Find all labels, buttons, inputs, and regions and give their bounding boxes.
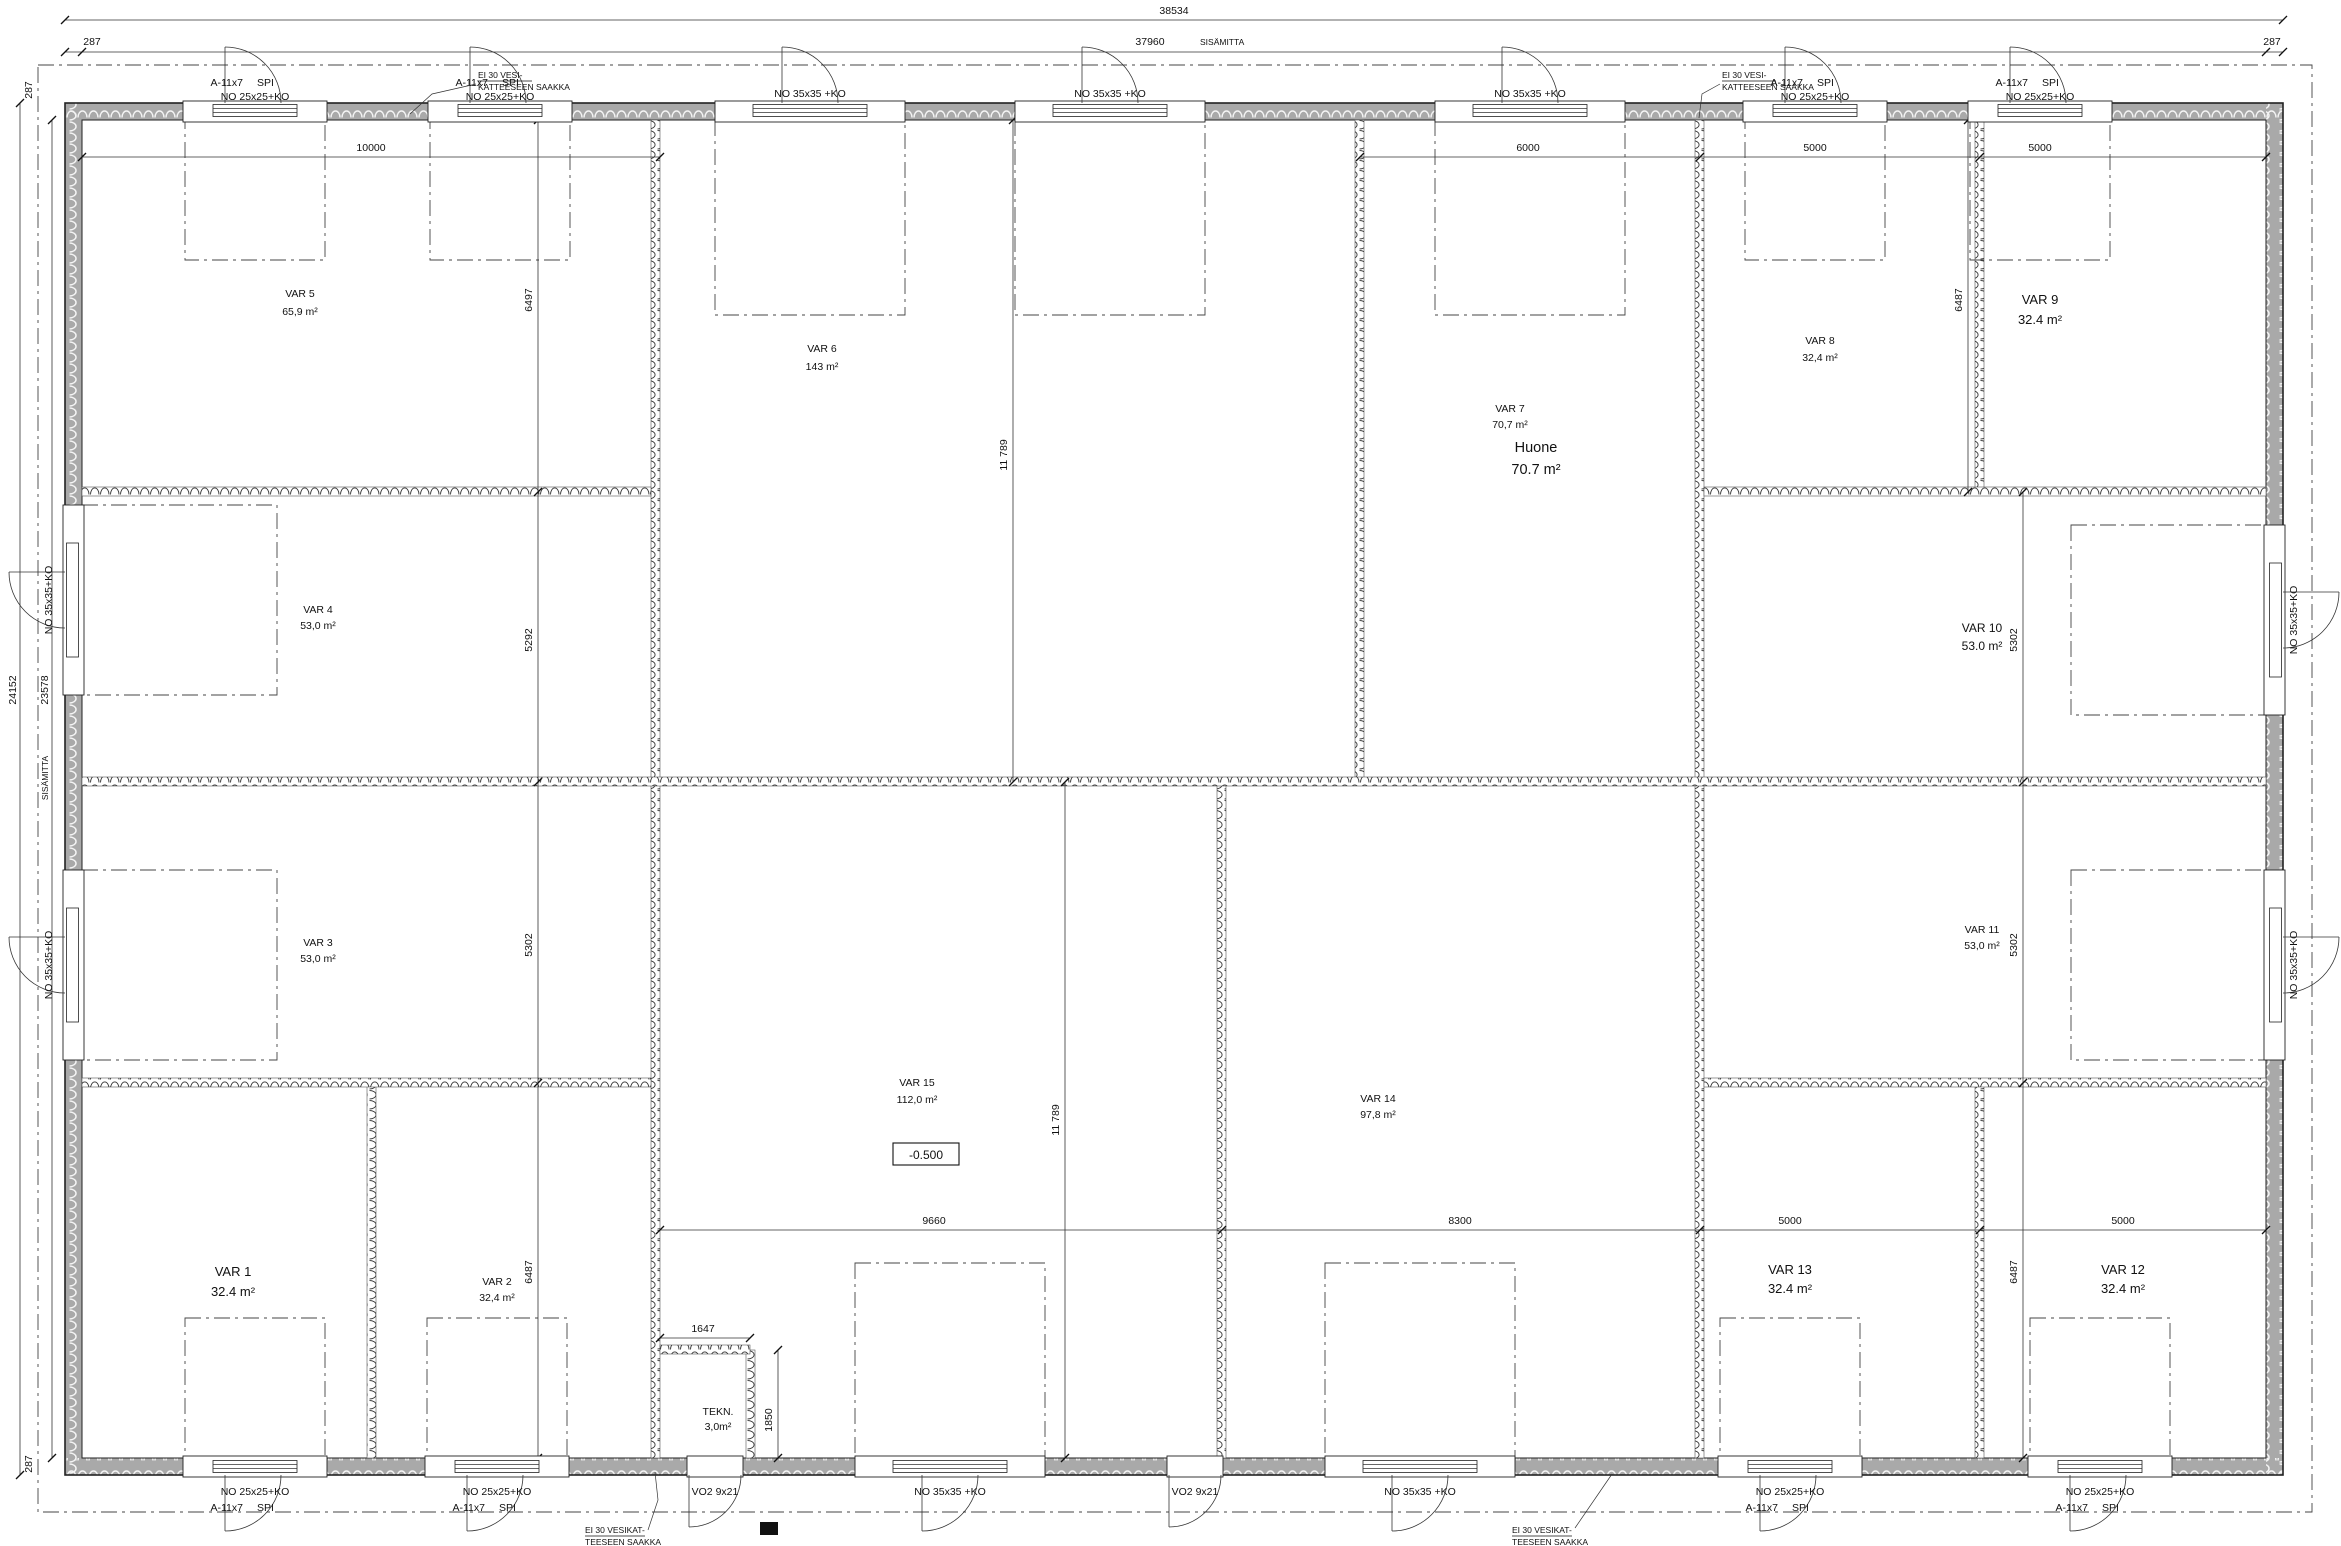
overall-dimensions: 38534 287 37960 SISÄMITTA 287 24152 2357… (7, 5, 2287, 1479)
room-name-var10: VAR 10 (1962, 621, 2003, 635)
door-label-no35: NO 35x35 +KO (914, 1486, 986, 1498)
wall-var14-var13 (1695, 782, 1704, 1458)
dim-5302-var11: 5302 (2008, 933, 2020, 957)
door-label-no35: NO 35x35 +KO (1384, 1486, 1456, 1498)
wall-var5-var4 (82, 487, 651, 496)
door-var13: NO 25x25+KO A-11x7 SPI (1718, 1456, 1862, 1531)
door-var7: NO 35x35 +KO (1435, 47, 1625, 122)
outer-walls (65, 103, 2283, 1475)
section-marker (760, 1522, 778, 1535)
dim-inner-height-label: SISÄMITTA (40, 756, 50, 801)
room-area-var4: 53,0 m² (300, 620, 336, 632)
dim-total-width: 38534 (1159, 5, 1188, 17)
door-label-spi: SPI (1792, 1502, 1809, 1514)
room-name-var1: VAR 1 (215, 1264, 252, 1279)
dim-11789-bottom: 11 789 (1050, 1104, 1062, 1135)
door-var2: NO 25x25+KO A-11x7 SPI (425, 1456, 569, 1531)
note-line2: TEESEEN SAAKKA (1512, 1537, 1588, 1546)
door-var14: NO 35x35 +KO (1325, 1456, 1515, 1531)
room-subarea-huone: 70.7 m² (1511, 462, 1560, 478)
room-area-var6: 143 m² (806, 361, 839, 373)
dim-wall-top-right: 287 (2263, 36, 2281, 48)
interior-walls (82, 120, 2266, 1458)
dim-5000-var13: 5000 (1778, 1215, 1802, 1227)
wall-var5col-var6 (651, 120, 660, 1458)
wall-var11-var13var12 (1704, 1078, 2266, 1087)
door-label-a11: A-11x7 (211, 1502, 244, 1514)
room-area-var7: 70,7 m² (1492, 419, 1528, 431)
dim-8300: 8300 (1448, 1215, 1472, 1227)
room-name-var3: VAR 3 (303, 937, 333, 949)
dim-9660: 9660 (922, 1215, 946, 1227)
door-label-vo2: VO2 9x21 (1172, 1486, 1219, 1498)
dim-1647: 1647 (691, 1323, 715, 1335)
elevation-value: -0.500 (909, 1148, 943, 1162)
room-name-var11: VAR 11 (1965, 924, 2000, 936)
door-label-no35v: NO 35x35+KO (2288, 931, 2300, 1000)
dim-5000-var8: 5000 (1803, 142, 1827, 154)
door-label-no25: NO 25x25+KO (463, 1486, 532, 1498)
door-label-no25: NO 25x25+KO (1781, 91, 1850, 103)
dim-6000: 6000 (1516, 142, 1540, 154)
room-name-var13: VAR 13 (1768, 1262, 1812, 1277)
door-var6-2: NO 35x35 +KO (1015, 47, 1205, 122)
door-label-no35: NO 35x35 +KO (1494, 88, 1566, 100)
note-ei30-bottom-right: EI 30 VESIKAT- TEESEEN SAAKKA (1512, 1474, 1612, 1546)
door-var6-1: NO 35x35 +KO (715, 47, 905, 122)
room-name-var14: VAR 14 (1360, 1093, 1396, 1105)
roof-eaves-outline (38, 65, 2312, 1512)
room-area-var1: 32.4 m² (211, 1284, 256, 1299)
door-label-no25: NO 25x25+KO (2006, 91, 2075, 103)
dim-wall-left-bottom: 287 (23, 1455, 35, 1473)
door-label-no25: NO 25x25+KO (2066, 1486, 2135, 1498)
door-label-no25: NO 25x25+KO (221, 1486, 290, 1498)
room-area-var2: 32,4 m² (479, 1292, 515, 1304)
wall-var6-var7 (1355, 120, 1364, 782)
door-label-spi: SPI (1817, 77, 1834, 89)
room-name-var4: VAR 4 (303, 604, 333, 616)
room-area-var14: 97,8 m² (1360, 1109, 1396, 1121)
room-name-var6: VAR 6 (807, 343, 837, 355)
door-label-vo2: VO2 9x21 (692, 1486, 739, 1498)
interior-dimensions: 10000 6000 5000 5000 9660 8300 5000 5000… (78, 116, 2270, 1462)
wall-var15-var14 (1217, 782, 1226, 1458)
door-label-a11: A-11x7 (2056, 1502, 2089, 1514)
dim-10000: 10000 (356, 142, 385, 154)
door-label-a11: A-11x7 (453, 1502, 486, 1514)
dim-5292: 5292 (523, 628, 535, 652)
room-name-tekn: TEKN. (703, 1406, 734, 1418)
dim-inner-width-label: SISÄMITTA (1200, 37, 1245, 47)
room-name-var15: VAR 15 (899, 1077, 935, 1089)
wall-var7-var8 (1695, 120, 1704, 782)
room-area-var3: 53,0 m² (300, 953, 336, 965)
note-line1: EI 30 VESIKAT- (1512, 1525, 1572, 1535)
door-var5-1: A-11x7 SPI NO 25x25+KO (183, 47, 327, 122)
dim-11789-top: 11 789 (998, 439, 1010, 470)
dim-inner-height: 23578 (39, 675, 51, 704)
room-area-tekn: 3,0m² (705, 1421, 732, 1433)
door-label-spi: SPI (2042, 77, 2059, 89)
dim-5302-var3: 5302 (523, 933, 535, 957)
dim-5302-var10: 5302 (2008, 628, 2020, 652)
door-var15-vo2: VO2 9x21 (1167, 1456, 1223, 1527)
room-area-var10: 53.0 m² (1962, 639, 2003, 653)
room-area-var9: 32.4 m² (2018, 312, 2063, 327)
door-label-spi: SPI (257, 1502, 274, 1514)
room-subname-huone: Huone (1515, 440, 1558, 456)
note-line2: TEESEEN SAAKKA (585, 1537, 661, 1546)
room-name-var8: VAR 8 (1805, 335, 1835, 347)
note-line1: EI 30 VESI- (478, 70, 523, 80)
wall-tekn-top (660, 1345, 750, 1354)
door-tekn-vo2: VO2 9x21 (687, 1456, 743, 1527)
room-area-var12: 32.4 m² (2101, 1281, 2146, 1296)
dim-5000-var12: 5000 (2111, 1215, 2135, 1227)
door-var1: NO 25x25+KO A-11x7 SPI (183, 1456, 327, 1531)
dim-5000-var9: 5000 (2028, 142, 2052, 154)
door-var11-right: NO 35x35+KO (2264, 870, 2339, 1060)
wall-var8var9-var10 (1704, 487, 2266, 496)
door-label-a11: A-11x7 (1746, 1502, 1779, 1514)
door-var12: NO 25x25+KO A-11x7 SPI (2028, 1456, 2172, 1531)
door-label-no35v: NO 35x35+KO (43, 566, 55, 635)
door-label-no35: NO 35x35 +KO (774, 88, 846, 100)
room-name-var9: VAR 9 (2022, 292, 2059, 307)
room-area-var13: 32.4 m² (1768, 1281, 1813, 1296)
dim-wall-left-top: 287 (23, 81, 35, 99)
dim-6487-var8: 6487 (1953, 288, 1965, 312)
room-area-var8: 32,4 m² (1802, 352, 1838, 364)
doors-top: A-11x7 SPI NO 25x25+KO A-11x7 SPI NO 25x… (183, 47, 2112, 122)
wall-central (82, 777, 2266, 786)
dim-wall-top-left: 287 (83, 36, 101, 48)
room-name-var5: VAR 5 (285, 288, 315, 300)
door-clearance-zones (82, 120, 2266, 1458)
door-label-no35v: NO 35x35+KO (43, 931, 55, 1000)
wall-var3-var1var2 (82, 1078, 651, 1087)
dim-6487-var2: 6487 (523, 1260, 535, 1284)
wall-var13-var12 (1975, 1083, 1984, 1458)
door-var9: A-11x7 SPI NO 25x25+KO (1968, 47, 2112, 122)
door-label-spi: SPI (257, 77, 274, 89)
room-name-var12: VAR 12 (2101, 1262, 2145, 1277)
door-var10-right: NO 35x35+KO (2264, 525, 2339, 715)
dim-inner-width: 37960 (1135, 36, 1164, 48)
floor-plan-page: 38534 287 37960 SISÄMITTA 287 24152 2357… (0, 0, 2341, 1546)
room-area-var11: 53,0 m² (1964, 940, 2000, 952)
dim-1850: 1850 (763, 1408, 775, 1432)
door-label-no25: NO 25x25+KO (466, 91, 535, 103)
door-label-a11: A-11x7 (1996, 77, 2029, 89)
note-line2: KATTEESEEN SAAKKA (478, 82, 570, 92)
wall-tekn-right (746, 1350, 755, 1458)
door-label-no35v: NO 35x35+KO (2288, 586, 2300, 655)
door-label-a11: A-11x7 (1771, 77, 1804, 89)
floor-plan-canvas: 38534 287 37960 SISÄMITTA 287 24152 2357… (0, 0, 2341, 1546)
door-label-a11: A-11x7 (211, 77, 244, 89)
dim-6497: 6497 (523, 288, 535, 312)
door-label-no25: NO 25x25+KO (221, 91, 290, 103)
room-area-var15: 112,0 m² (897, 1094, 938, 1106)
dim-total-height: 24152 (7, 675, 19, 704)
elevation-marker: -0.500 (893, 1143, 959, 1165)
room-name-var7: VAR 7 (1495, 403, 1525, 415)
wall-var8-var9 (1975, 120, 1984, 492)
dim-6487-var12: 6487 (2008, 1260, 2020, 1284)
note-ei30-bottom-left: EI 30 VESIKAT- TEESEEN SAAKKA (585, 1472, 661, 1546)
room-name-var2: VAR 2 (482, 1276, 512, 1288)
door-label-spi: SPI (499, 1502, 516, 1514)
note-line1: EI 30 VESI- (1722, 70, 1767, 80)
door-label-no25: NO 25x25+KO (1756, 1486, 1825, 1498)
room-area-var5: 65,9 m² (282, 306, 318, 318)
room-labels: VAR 5 65,9 m² VAR 6 143 m² VAR 7 70,7 m²… (211, 288, 2146, 1433)
door-var15: NO 35x35 +KO (855, 1456, 1045, 1531)
door-label-spi: SPI (2102, 1502, 2119, 1514)
door-label-no35: NO 35x35 +KO (1074, 88, 1146, 100)
note-line1: EI 30 VESIKAT- (585, 1525, 645, 1535)
wall-var1-var2 (367, 1083, 376, 1458)
